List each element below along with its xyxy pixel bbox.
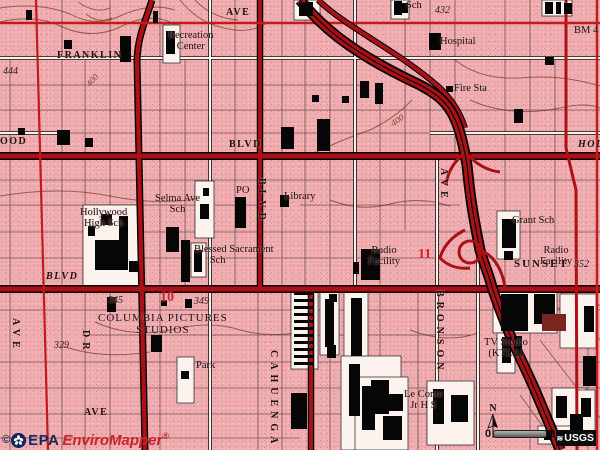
- elev-349: 349: [194, 297, 209, 308]
- label-le-conte: Le Conte Jr H S: [404, 389, 443, 411]
- street-blvd-sunset-west: BLVD: [46, 272, 78, 283]
- elev-345: 345: [108, 296, 123, 307]
- street-ave-left-vert: AVE: [10, 318, 21, 353]
- epa-logo-icon: [11, 433, 26, 448]
- registered-symbol: ®: [162, 431, 169, 441]
- elev-352: 352: [574, 260, 589, 271]
- street-cahuenga-vert: CAHUENGA: [268, 350, 279, 448]
- copyright-symbol: ©: [2, 434, 10, 446]
- street-bronson-vert: BRONSON: [434, 290, 445, 374]
- street-blvd-cahuenga-vert: BLVD: [256, 178, 267, 225]
- epa-wordmark: EPA: [28, 432, 59, 449]
- label-hollywood-high: Hollywood High Sch: [80, 207, 127, 229]
- label-bm-4: BM 4: [574, 25, 598, 36]
- label-fire-sta: Fire Sta: [454, 83, 487, 94]
- usgs-wave-icon: ≋: [557, 434, 564, 443]
- label-radio-facility-west: Radio Facility: [368, 245, 400, 267]
- usgs-logo: ≋ USGS: [556, 430, 596, 446]
- scale-bar-rule: [493, 430, 547, 438]
- scale-end-label: 0: [549, 428, 555, 440]
- label-grant-sch: Grant Sch: [512, 215, 554, 226]
- enviromapper-wordmark: EnviroMapper®: [62, 431, 169, 449]
- street-ave-top: AVE: [226, 8, 250, 19]
- label-columbia-pictures: COLUMBIA PICTURES STUDIOS: [98, 313, 228, 336]
- label-hospital: Hospital: [440, 36, 476, 47]
- scale-bar: 0 0: [485, 428, 555, 440]
- street-ood-left: OOD: [0, 137, 27, 148]
- map-labels-layer: FRANKLINAVERecreation CenterSch432Hospit…: [0, 0, 600, 450]
- street-sunset: SUNSET: [514, 259, 569, 271]
- street-dr-vert: DR: [80, 330, 91, 354]
- contour-400-mid: 400: [390, 113, 406, 128]
- label-selma-ave-sch: Selma Ave Sch: [155, 193, 200, 215]
- scale-start-label: 0: [485, 428, 491, 440]
- map-viewport[interactable]: FRANKLINAVERecreation CenterSch432Hospit…: [0, 0, 600, 450]
- street-ave-bronson-vert: AVE: [438, 168, 449, 203]
- elev-432: 432: [435, 6, 450, 17]
- site-number-11: 11: [418, 248, 431, 263]
- label-tv-studio-ktla: TV Studio (KTLA): [484, 337, 528, 359]
- label-park: Park: [196, 360, 215, 371]
- label-library: Library: [284, 191, 316, 202]
- north-arrow-label: N: [486, 403, 500, 414]
- site-number-10: 10: [160, 291, 174, 306]
- epa-enviromapper-watermark: © EPA EnviroMapper®: [2, 431, 169, 449]
- elev-444: 444: [3, 67, 18, 78]
- label-blessed-sacrament: Blessed Sacrament Sch: [194, 244, 274, 266]
- contour-400-west: 400: [85, 73, 101, 89]
- label-po: PO: [236, 185, 249, 196]
- street-blvd-hollywood: BLVD: [229, 140, 262, 151]
- street-ave-bottom-left: AVE: [84, 408, 108, 419]
- elev-329: 329: [54, 341, 69, 352]
- street-hol-right: HOL: [578, 140, 600, 151]
- label-recreation-center: Recreation Center: [168, 30, 213, 52]
- usgs-logo-text: USGS: [564, 432, 594, 444]
- label-sch-top: Sch: [406, 0, 422, 11]
- street-franklin: FRANKLIN: [57, 51, 122, 62]
